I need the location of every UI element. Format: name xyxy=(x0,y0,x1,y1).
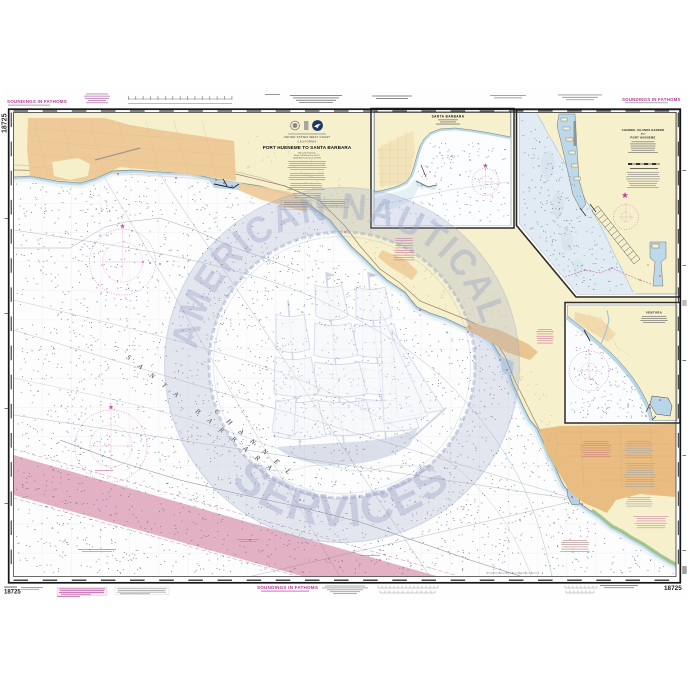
svg-text:SANTA BARBARA: SANTA BARBARA xyxy=(432,115,465,119)
svg-text:PORT HUENEME TO SANTA BARBARA: PORT HUENEME TO SANTA BARBARA xyxy=(263,145,352,150)
svg-text:SOUNDINGS IN FATHOMS: SOUNDINGS IN FATHOMS xyxy=(257,585,318,590)
svg-text:18725: 18725 xyxy=(4,590,21,596)
svg-text:VENTURA: VENTURA xyxy=(646,311,662,315)
svg-text:CHANNEL ISLANDS HARBOR: CHANNEL ISLANDS HARBOR xyxy=(622,128,665,132)
svg-text:SOUNDINGS IN FATHOMS: SOUNDINGS IN FATHOMS xyxy=(7,99,67,104)
svg-text:North American Datum of 1983: North American Datum of 1983 xyxy=(293,156,321,159)
svg-text:18725: 18725 xyxy=(2,113,9,133)
svg-text:PORT HUENEME: PORT HUENEME xyxy=(630,135,655,139)
svg-text:SOUNDINGS IN FATHOMS: SOUNDINGS IN FATHOMS xyxy=(622,97,681,102)
svg-text:18725: 18725 xyxy=(664,585,682,592)
svg-text:UNITED STATES WEST COAST: UNITED STATES WEST COAST xyxy=(284,135,331,139)
svg-text:CALIFORNIA: CALIFORNIA xyxy=(297,140,316,143)
svg-text:AND: AND xyxy=(641,133,646,136)
